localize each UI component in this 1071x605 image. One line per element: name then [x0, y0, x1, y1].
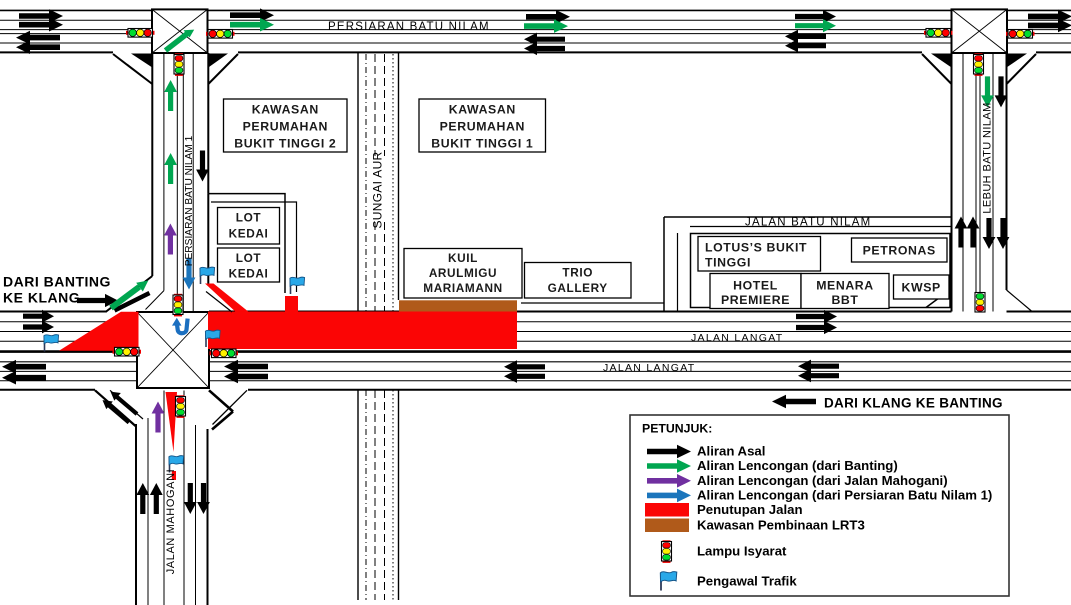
- svg-text:KWSP: KWSP: [902, 281, 941, 295]
- svg-text:GALLERY: GALLERY: [548, 281, 608, 295]
- svg-text:Aliran Asal: Aliran Asal: [697, 444, 765, 459]
- svg-text:Aliran Lencongan (dari Jalan M: Aliran Lencongan (dari Jalan Mahogani): [697, 473, 948, 488]
- svg-text:PREMIERE: PREMIERE: [721, 293, 790, 307]
- svg-text:PETRONAS: PETRONAS: [863, 244, 936, 258]
- svg-text:Kawasan Pembinaan LRT3: Kawasan Pembinaan LRT3: [697, 518, 865, 533]
- svg-text:DARI BANTING: DARI BANTING: [3, 274, 111, 290]
- svg-text:BUKIT TINGGI 1: BUKIT TINGGI 1: [431, 137, 533, 151]
- svg-text:SUNGAI AUR: SUNGAI AUR: [371, 151, 385, 228]
- svg-text:PERUMAHAN: PERUMAHAN: [243, 120, 328, 134]
- svg-text:LOTUS’S BUKIT: LOTUS’S BUKIT: [705, 241, 807, 255]
- svg-text:KEDAI: KEDAI: [229, 227, 269, 241]
- svg-text:MARIAMANN: MARIAMANN: [423, 281, 502, 295]
- svg-text:KAWASAN: KAWASAN: [252, 103, 319, 117]
- svg-text:DARI KLANG KE BANTING: DARI KLANG KE BANTING: [824, 396, 1003, 411]
- svg-text:PERSIARAN BATU NILAM 1: PERSIARAN BATU NILAM 1: [184, 135, 195, 266]
- svg-text:Aliran Lencongan (dari Banting: Aliran Lencongan (dari Banting): [697, 458, 898, 473]
- svg-text:TRIO: TRIO: [562, 266, 593, 280]
- svg-text:PERUMAHAN: PERUMAHAN: [440, 120, 525, 134]
- svg-text:Lampu Isyarat: Lampu Isyarat: [697, 544, 787, 559]
- svg-text:Aliran Lencongan (dari Persiar: Aliran Lencongan (dari Persiaran Batu Ni…: [697, 487, 992, 502]
- svg-text:TINGGI: TINGGI: [705, 256, 751, 270]
- svg-text:JALAN LANGAT: JALAN LANGAT: [603, 362, 695, 374]
- svg-text:PERSIARAN BATU NILAM: PERSIARAN BATU NILAM: [328, 21, 490, 33]
- svg-text:JALAN LANGAT: JALAN LANGAT: [691, 332, 783, 344]
- svg-text:LOT: LOT: [236, 251, 262, 265]
- svg-text:KE KLANG: KE KLANG: [3, 290, 80, 306]
- svg-text:Penutupan Jalan: Penutupan Jalan: [697, 502, 803, 517]
- svg-text:LEBUH BATU NILAM: LEBUH BATU NILAM: [981, 102, 993, 213]
- svg-text:Pengawal Trafik: Pengawal Trafik: [697, 574, 797, 589]
- svg-text:ARULMIGU: ARULMIGU: [429, 266, 497, 280]
- svg-text:JALAN BATU NILAM: JALAN BATU NILAM: [745, 217, 871, 229]
- svg-text:KAWASAN: KAWASAN: [449, 103, 516, 117]
- svg-text:PETUNJUK:: PETUNJUK:: [642, 422, 712, 436]
- svg-text:KEDAI: KEDAI: [229, 267, 269, 281]
- svg-text:BBT: BBT: [831, 293, 858, 307]
- svg-text:KUIL: KUIL: [448, 251, 478, 265]
- svg-text:JALAN MAHOGANI: JALAN MAHOGANI: [165, 469, 177, 575]
- svg-text:LOT: LOT: [236, 211, 262, 225]
- svg-text:BUKIT TINGGI 2: BUKIT TINGGI 2: [234, 137, 336, 151]
- svg-text:MENARA: MENARA: [816, 279, 874, 293]
- svg-text:HOTEL: HOTEL: [733, 279, 778, 293]
